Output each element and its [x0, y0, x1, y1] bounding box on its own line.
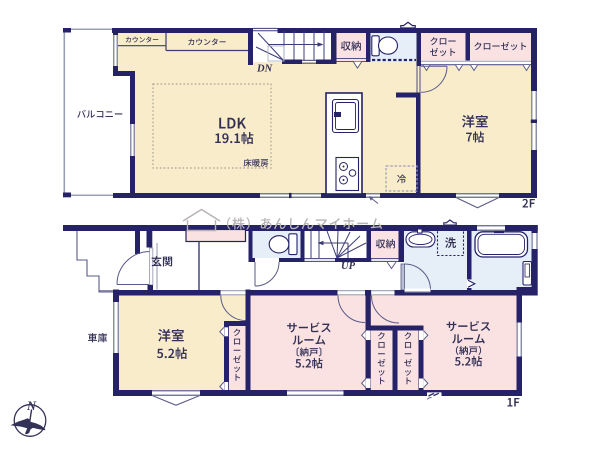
svg-text:UP: UP: [341, 261, 356, 272]
svg-text:DN: DN: [256, 64, 273, 75]
